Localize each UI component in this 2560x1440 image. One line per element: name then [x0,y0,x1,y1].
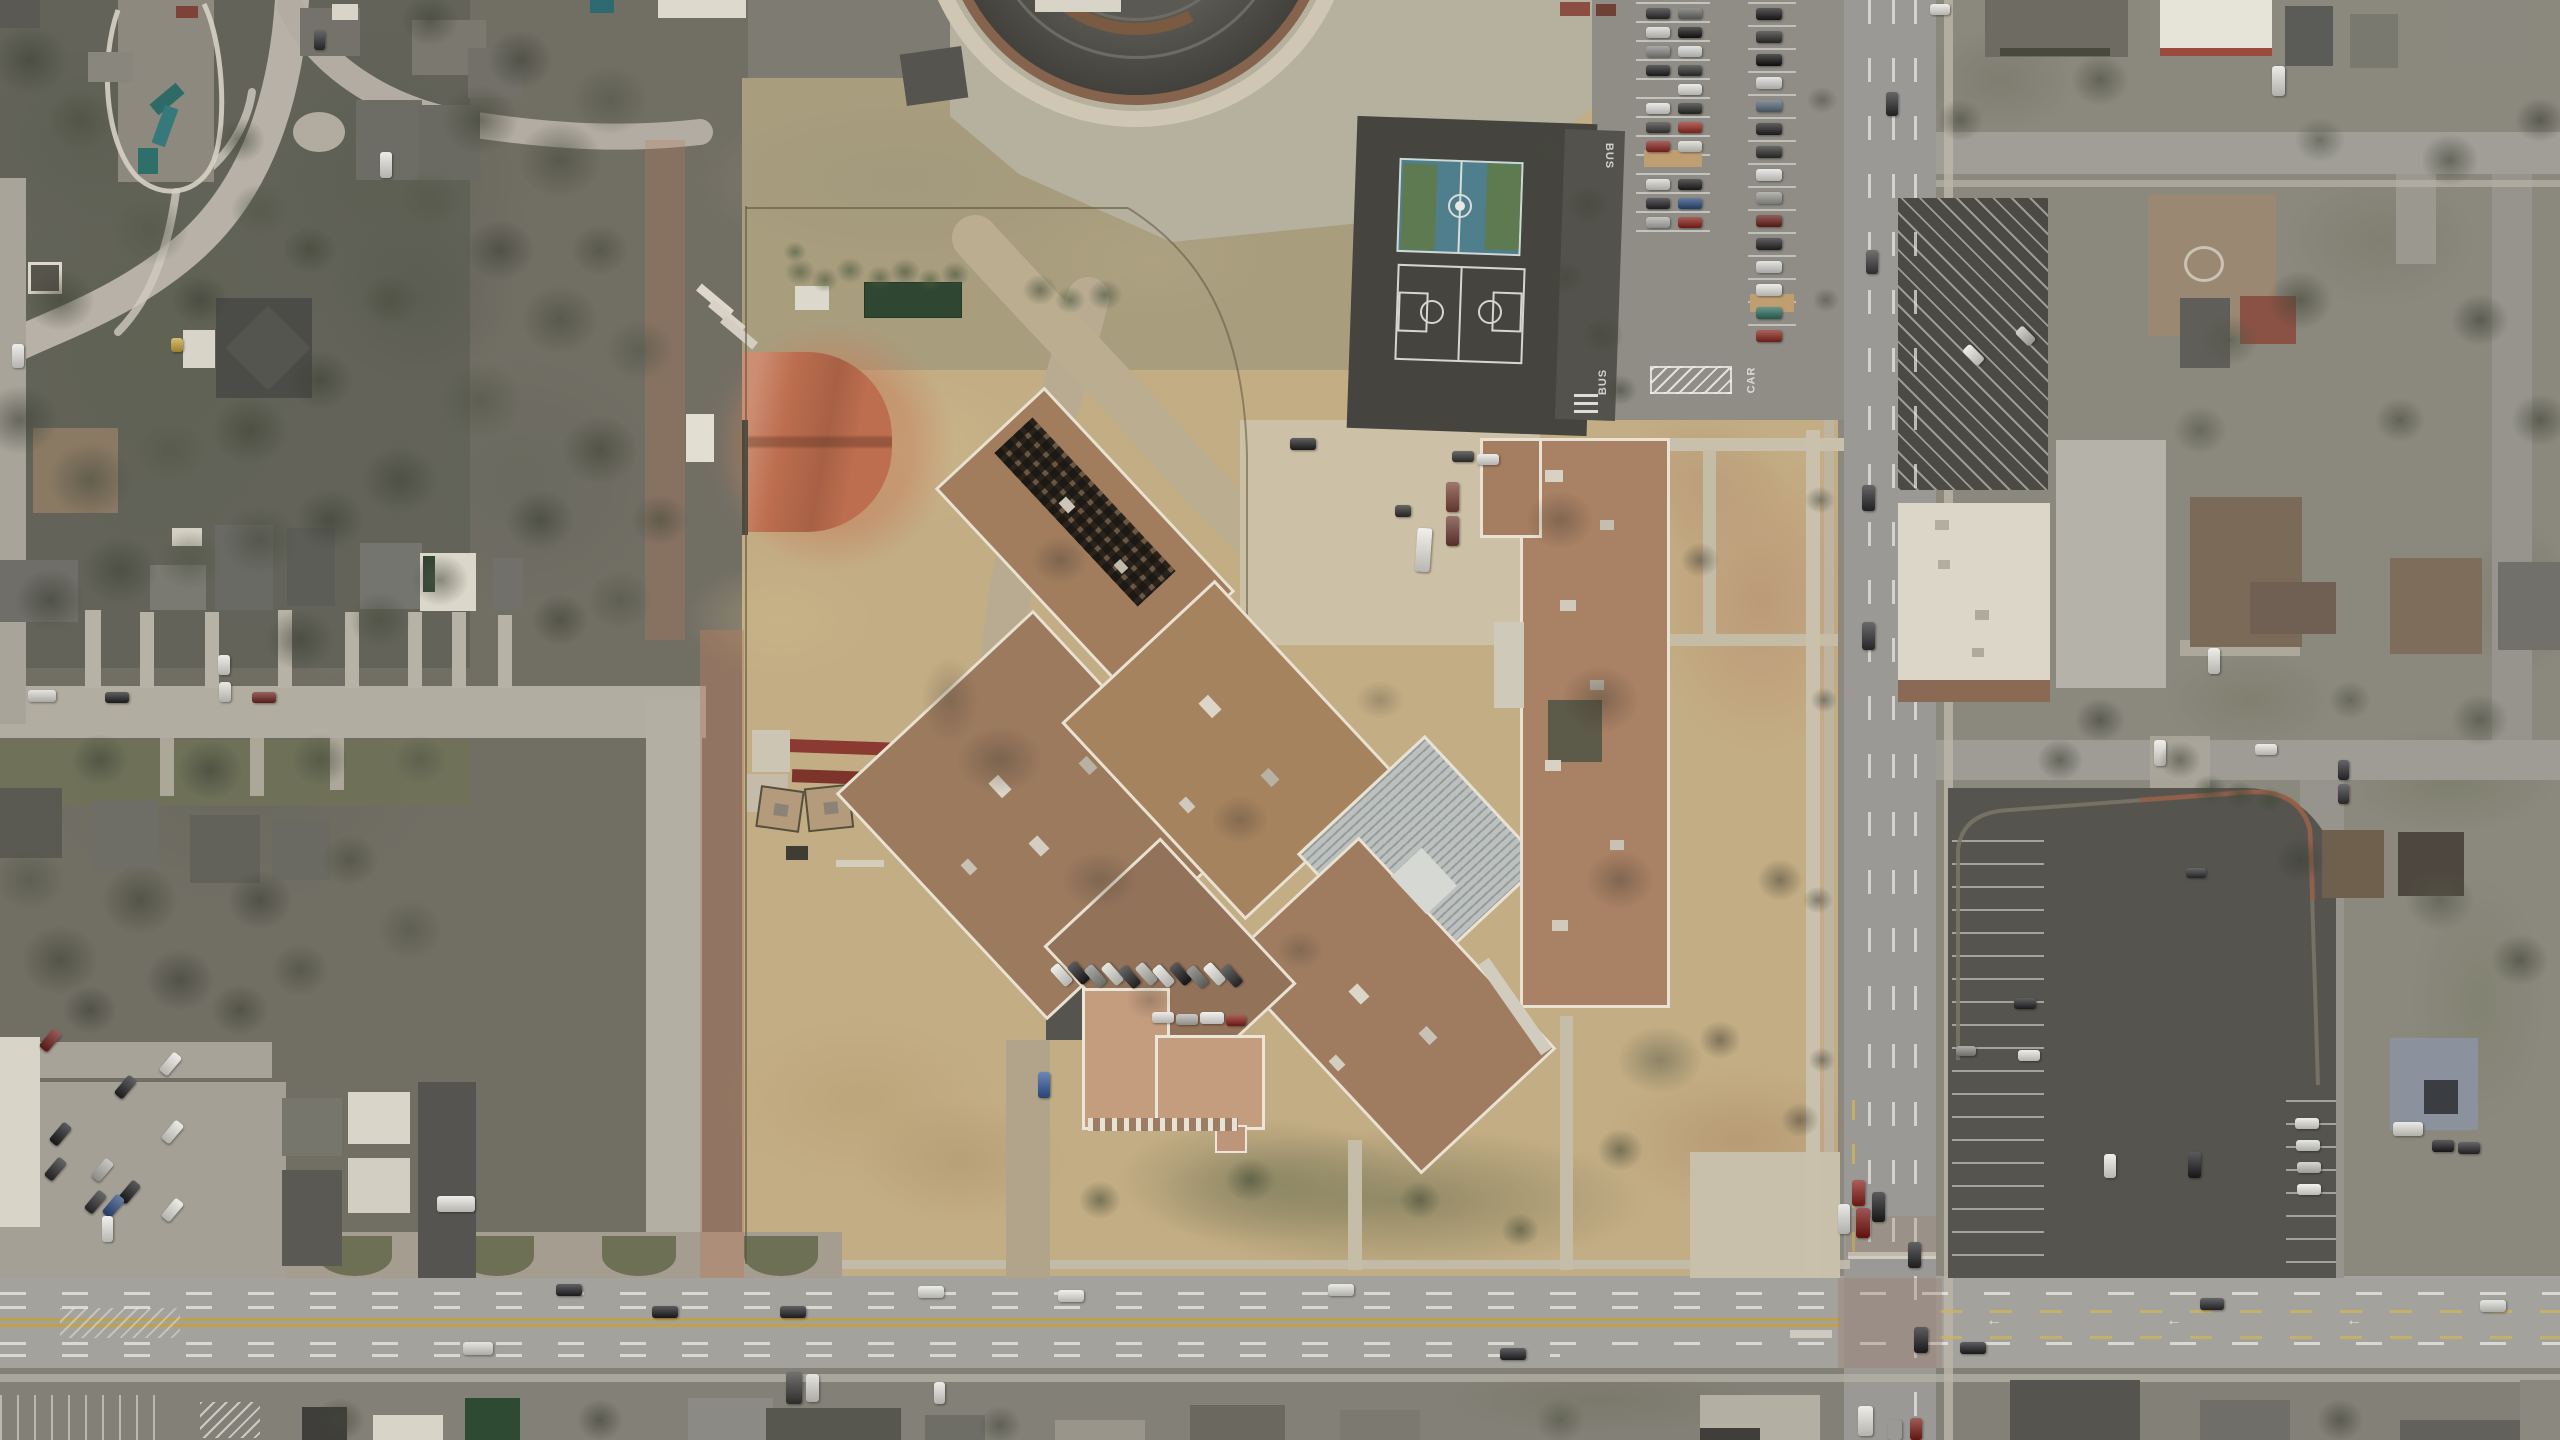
house [2285,6,2333,66]
car [2014,998,2036,1009]
tree [1802,886,1834,915]
tree [220,504,300,576]
tree [360,273,420,327]
car [1646,217,1670,228]
car [1414,528,1432,573]
sw-wing-b [1155,1035,1265,1130]
pavilion-2-core [823,801,838,814]
house-peaked [688,1398,773,1440]
white-commercial-base [1898,680,2050,702]
car [1756,261,1782,273]
car [1756,77,1782,89]
tree [1398,1180,1442,1220]
car [1477,454,1499,465]
car [1756,330,1782,342]
roof-stain [1525,490,1595,550]
car [380,152,392,178]
car [1756,169,1782,181]
tree [46,89,114,150]
tree [214,117,266,164]
left-bldg-white-1 [348,1092,410,1144]
tree [156,529,224,590]
car [786,1372,802,1404]
rooftop-unit [1972,648,1984,657]
car [1886,92,1898,116]
car [1678,65,1702,76]
tree [1564,183,1612,226]
tree [2224,781,2256,810]
tree [1546,260,1586,296]
tree [2450,693,2510,747]
lot-dark-s [2010,1380,2140,1440]
tree [1680,542,1720,578]
car [2208,648,2220,674]
tree [290,733,350,787]
car [2338,760,2349,780]
tree [176,739,244,800]
pool-teal [590,0,614,13]
tree [1530,132,1570,168]
tree [2510,393,2560,447]
tree [2328,680,2372,720]
car [2393,1122,2423,1136]
car [252,692,276,703]
car [105,692,129,703]
car [1756,215,1782,227]
car [1756,31,1782,43]
tree [46,440,134,519]
park-bench-shelter [176,6,198,18]
car [1756,123,1782,135]
car [1678,179,1702,190]
tree [560,414,640,486]
white-red-building [2160,0,2272,55]
tree [348,591,412,649]
tree [170,273,230,327]
tree [1780,1102,1820,1138]
tree [396,169,464,230]
tree [1054,286,1086,315]
tree [2374,397,2426,444]
house-white [373,1415,443,1440]
car [1395,505,1411,517]
tree [1534,1397,1586,1440]
tree [1808,1047,1836,1072]
house [2455,0,2530,62]
tree [376,899,444,960]
left-bldg-gray [282,1098,342,1156]
car [934,1382,945,1404]
tree [0,848,66,913]
tree [62,985,118,1035]
tree [24,268,96,333]
tree [2192,774,2228,806]
red-trim [2160,48,2272,56]
car [1914,1327,1928,1353]
roof-stain [1060,850,1140,910]
car [1452,451,1474,462]
house [2250,582,2336,634]
car [1756,307,1782,319]
tree [2274,837,2326,884]
roof-stain [920,655,980,745]
roof-stain [1585,850,1655,910]
tree [604,318,676,383]
car [1646,198,1670,209]
house [2520,1380,2560,1440]
tree [1224,1157,1276,1204]
car [1678,46,1702,57]
car [1646,179,1670,190]
tree [210,983,270,1037]
long-white-building-west [0,1037,40,1227]
tree [392,735,448,785]
tree [1812,287,1840,312]
tree [1087,279,1123,311]
left-bldg-white-2 [348,1158,410,1213]
house [493,558,523,610]
car [1866,250,1878,274]
tree [286,349,354,410]
car [28,690,56,702]
car [102,1216,113,1242]
tree [2490,933,2550,987]
car [219,682,231,702]
roof-stain [1030,535,1090,585]
tree [630,493,690,547]
car [2295,1118,2319,1129]
house [766,1408,901,1440]
tree [264,608,336,673]
car [1888,1420,1902,1440]
blue-court-logo [1455,201,1465,211]
roof-stain [1355,680,1405,720]
car [1852,1180,1865,1206]
house [2390,558,2482,654]
tree [464,218,536,283]
tree [400,0,460,47]
tree [1810,687,1838,712]
tree [144,948,216,1013]
house [2498,562,2560,650]
car [918,1286,944,1298]
tree [110,194,190,266]
school-bridge-canopy [1494,622,1524,708]
tree [2420,133,2480,187]
tree [570,64,650,136]
left-bldg-dark [282,1170,342,1266]
rooftop-unit [1560,600,1576,611]
car [2296,1140,2320,1151]
tree [100,864,180,936]
car [2480,1300,2506,1312]
car [1858,1406,1873,1436]
white-commercial-building [1898,503,2050,685]
car [1176,1014,1198,1025]
tree [294,488,366,553]
car [2104,1154,2116,1178]
car [1756,146,1782,158]
building-dark-north [900,46,969,106]
car [1756,100,1782,112]
tree [2070,53,2130,107]
roof-stain [1275,930,1325,970]
car [1756,284,1782,296]
white-strip-building [1035,0,1121,12]
car [1756,192,1782,204]
car [1838,1204,1850,1234]
car [1038,1072,1050,1098]
car [1646,141,1670,152]
car [1646,65,1670,76]
tree [940,261,970,288]
house [1055,1420,1145,1440]
rooftop-unit [1545,760,1561,771]
car [1756,238,1782,250]
car [780,1306,806,1318]
rooftop-unit [1938,560,1950,569]
car [1646,122,1670,133]
white-court-circle-east [1478,300,1502,324]
bank-drive-canopy [2424,1080,2458,1114]
tree [70,733,130,787]
tree [570,223,630,277]
car [1960,1342,1986,1354]
tree [282,225,338,275]
car [1908,1242,1921,1268]
house [2200,1400,2290,1440]
tree [440,84,520,156]
pavement-marking-text: ← [2346,1312,2363,1330]
car [2297,1162,2321,1173]
tree [1806,86,1838,115]
car [1152,1012,1174,1023]
tree [2266,269,2334,330]
play-structure-3 [138,148,158,174]
car [1500,1348,1526,1360]
roof-stain [1210,795,1270,845]
tree [1698,1020,1742,1060]
car [1678,198,1702,209]
tree [2450,293,2510,347]
car [1446,482,1459,512]
house [92,800,158,872]
rooftop-unit [1610,840,1624,850]
car [1856,1208,1870,1238]
sw-wing-colonnade [1088,1118,1238,1131]
car [2297,1184,2321,1195]
satellite-map-canvas[interactable]: BUSBUSCAR←←← [0,0,2560,1440]
tree [314,1397,366,1440]
tree [2256,787,2284,812]
tree [1756,858,1804,901]
car [314,30,325,50]
car [1678,141,1702,152]
car [1646,8,1670,19]
shed-white [183,330,215,368]
tree [2294,117,2346,164]
tree [504,488,576,553]
tree [270,943,330,997]
car [1646,27,1670,38]
car [1226,1015,1246,1026]
rooftop-unit [1975,610,1989,620]
car [12,344,24,368]
tree [14,568,86,633]
bank-hedge [1958,792,2318,1085]
rooftop-unit [1935,520,1949,530]
tree [226,869,294,930]
tree [2514,97,2560,144]
car [2272,66,2285,96]
tree [2200,313,2260,367]
car [2458,1142,2480,1154]
car [1678,122,1702,133]
tree [1936,98,1984,141]
tree [835,257,865,284]
tree [576,1398,624,1440]
tree [210,394,290,466]
house [2400,1420,2520,1440]
car [1678,84,1702,95]
tree [1596,1128,1644,1171]
car [2432,1140,2454,1152]
pavement-marking-text: BUS [1603,143,1615,169]
tree [1022,274,1058,306]
car [1756,8,1782,20]
car [2338,784,2349,804]
tree [320,833,380,887]
car [1328,1284,1354,1296]
tree [783,241,807,263]
tree [978,1405,1022,1440]
tree [0,24,70,96]
car [2186,868,2206,878]
carport-white [332,4,358,20]
pavement-marking-text: CAR [1745,367,1757,394]
pavement-marking-text: ← [1986,1312,2003,1330]
brick-structure-1 [1560,2,1590,16]
car [2018,1050,2040,1061]
tree [1078,1180,1122,1220]
car [652,1306,678,1318]
roof-stain [1560,665,1640,735]
tree [486,29,554,90]
tree [1804,486,1836,515]
rooftop-unit [1545,470,1563,482]
house [1190,1405,1285,1440]
pavement-marking-text: BUS [1597,369,1609,395]
car [218,655,230,675]
car [2255,744,2277,755]
tree [520,284,600,356]
car [1646,46,1670,57]
rooftop-unit [1552,920,1568,931]
brick-structure-2 [1596,4,1616,16]
car [1910,1418,1922,1440]
rooftop-unit [1600,520,1614,530]
tree [1500,1212,1540,1248]
car [556,1284,582,1296]
car [2188,1152,2201,1178]
car [1646,103,1670,114]
tree [2316,1398,2364,1440]
car [1872,1192,1885,1222]
car [463,1342,493,1355]
tree [2172,405,2228,455]
car [1678,8,1702,19]
car [171,338,183,352]
house [1340,1410,1420,1440]
house [2350,14,2398,68]
tree [2074,697,2126,744]
pavement-marking-text: ← [2166,1312,2183,1330]
tree [586,569,654,630]
white-court-circle-west [1420,300,1444,324]
car [437,1196,475,1212]
tree [134,418,206,483]
pavilion-1-core [773,803,789,817]
tree [436,360,524,439]
car [1678,27,1702,38]
tree [80,534,160,606]
tree [410,553,470,607]
tree [360,444,440,516]
garage [88,52,134,82]
car [2200,1298,2224,1310]
car [1058,1290,1084,1302]
car [1446,516,1459,546]
car [1862,485,1875,511]
car [806,1374,819,1402]
tree [2404,868,2476,933]
tree [1580,315,1624,355]
car [1200,1012,1224,1024]
car [1678,103,1702,114]
car [1956,1046,1976,1056]
tree [230,183,290,237]
tree [530,593,590,647]
white-building-corner [658,0,746,18]
house-green-roof [465,1398,520,1440]
tree [2036,738,2084,781]
house [1700,1428,1760,1440]
car [1756,54,1782,66]
house [925,1415,985,1440]
car [1678,217,1702,228]
roof-stain [1615,1025,1705,1095]
car [1290,438,1316,450]
car [1862,622,1875,650]
house [2322,830,2384,898]
car [1930,4,1950,15]
